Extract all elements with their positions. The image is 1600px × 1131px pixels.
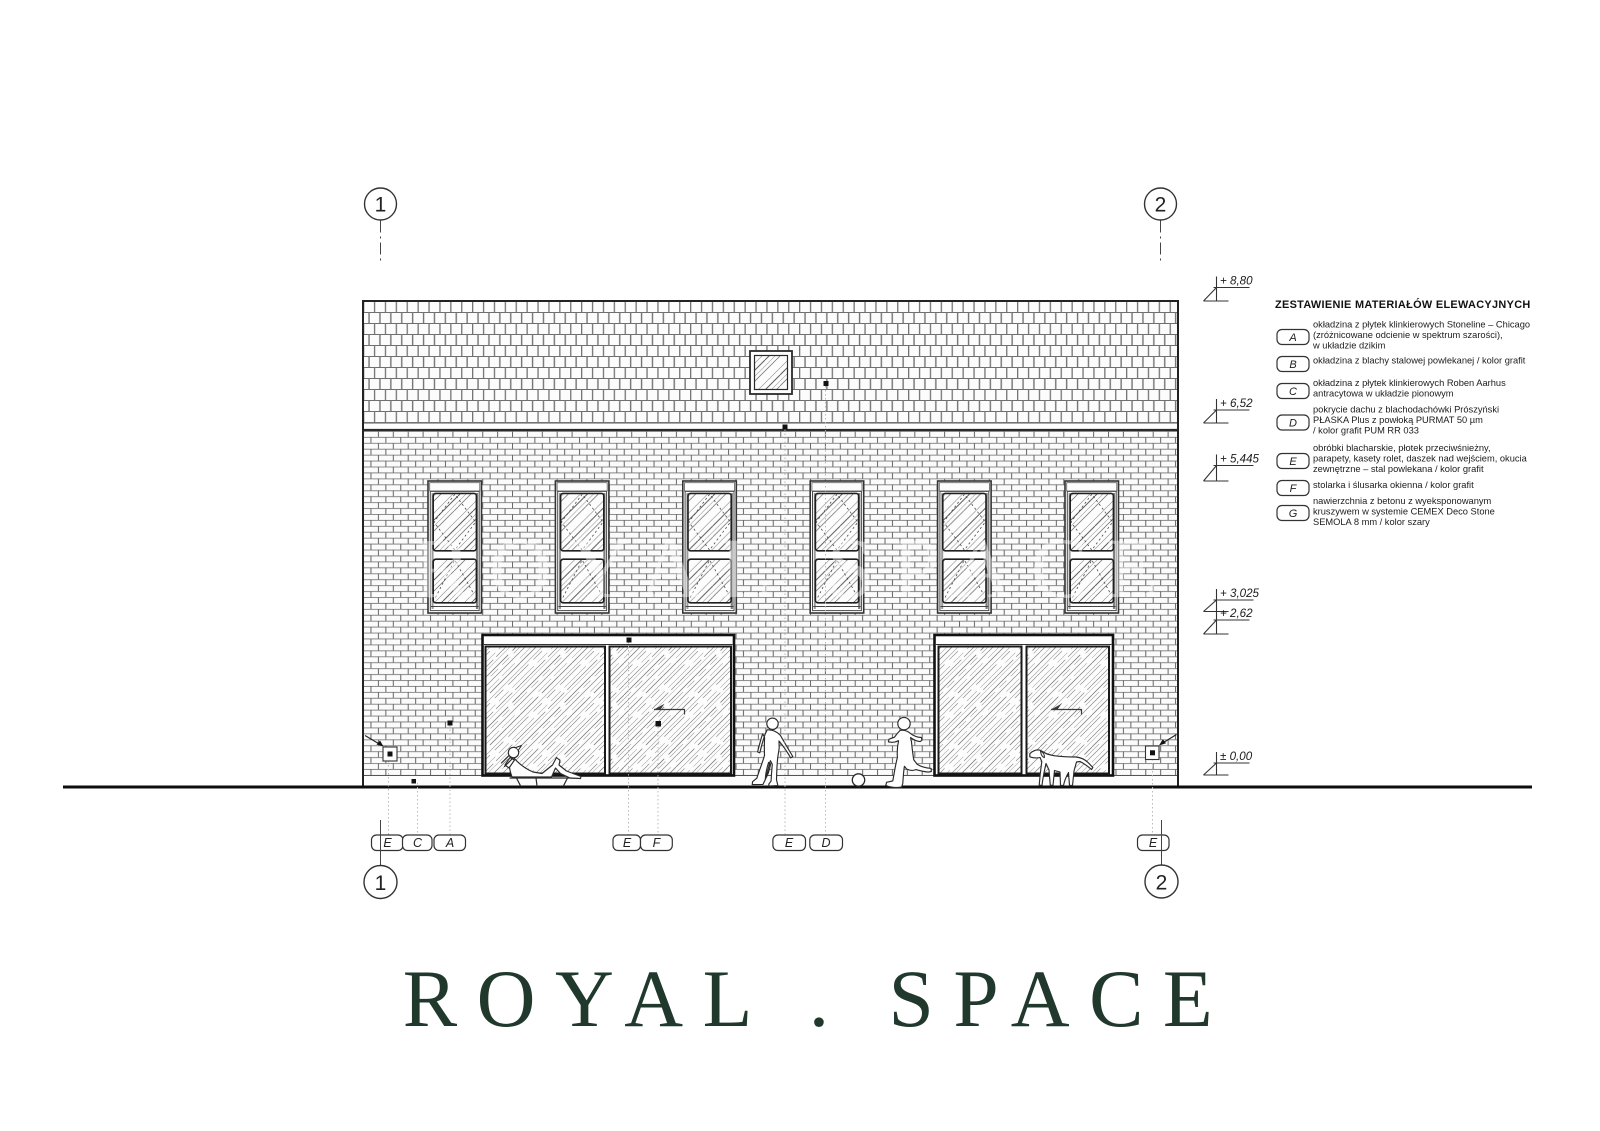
svg-text:+ 6,52: + 6,52 [1220,397,1253,410]
svg-text:pokrycie dachu z blachodachówk: pokrycie dachu z blachodachówki Prószyńs… [1313,405,1499,415]
svg-text:E: E [785,836,794,850]
svg-text:A: A [1288,332,1296,344]
svg-text:2: 2 [1155,194,1167,217]
svg-text:/ kolor grafit PUM RR 033: / kolor grafit PUM RR 033 [1313,426,1419,436]
svg-text:(zróżnicowane odcienie w spekt: (zróżnicowane odcienie w spektrum szaroś… [1313,330,1503,340]
svg-text:obróbki blacharskie, płotek pr: obróbki blacharskie, płotek przeciwśnież… [1313,443,1491,453]
svg-text:parapety, kasety rolet, daszek: parapety, kasety rolet, daszek nad wejśc… [1313,454,1528,464]
svg-text:okładzina z płytek klinkierowy: okładzina z płytek klinkierowych Stoneli… [1313,320,1530,330]
svg-text:C: C [413,836,423,850]
svg-text:G: G [1289,508,1298,520]
svg-text:D: D [821,836,830,850]
svg-text:nawierzchnia z betonu z wyeksp: nawierzchnia z betonu z wyeksponowanym [1313,496,1492,506]
svg-text:+ 5,445: + 5,445 [1220,453,1260,466]
svg-text:A: A [445,836,454,850]
svg-text:okładzina z płytek klinkierowy: okładzina z płytek klinkierowych Roben A… [1313,378,1506,388]
svg-text:E: E [1149,836,1158,850]
svg-text:w układzie dzikim: w układzie dzikim [1312,341,1386,351]
svg-text:E: E [623,836,632,850]
svg-text:+ 3,025: + 3,025 [1220,587,1260,600]
svg-text:zewnętrzne – stal powlekana /: zewnętrzne – stal powlekana / kolor graf… [1313,464,1484,474]
svg-text:ROYAL SPACE: ROYAL SPACE [414,520,1177,616]
svg-text:1: 1 [375,194,387,217]
svg-text:± 0,00: ± 0,00 [1220,750,1253,763]
svg-text:ZESTAWIENIE MATERIAŁÓW ELEWACY: ZESTAWIENIE MATERIAŁÓW ELEWACYJNYCH [1275,298,1531,311]
svg-text:stolarka i ślusarka okienna /: stolarka i ślusarka okienna / kolor graf… [1313,480,1474,490]
svg-text:B: B [1289,359,1296,371]
svg-text:2: 2 [1156,872,1168,895]
svg-text:1: 1 [375,872,387,895]
svg-text:ROYAL . SPACE: ROYAL . SPACE [403,953,1232,1044]
svg-text:SEMOLA 8 mm / kolor szary: SEMOLA 8 mm / kolor szary [1313,517,1430,527]
svg-text:D: D [1289,418,1297,430]
svg-text:E: E [383,836,392,850]
svg-text:okładzina z blachy stalowej po: okładzina z blachy stalowej powlekanej /… [1313,356,1526,366]
svg-text:E: E [1289,456,1297,468]
svg-text:+ 8,80: + 8,80 [1220,275,1253,288]
svg-text:kruszywem w systemie CEMEX Dec: kruszywem w systemie CEMEX Deco Stone [1313,507,1495,517]
svg-text:+ 2,62: + 2,62 [1220,607,1253,620]
svg-text:C: C [1289,386,1297,398]
svg-text:antracytowa w układzie pionowy: antracytowa w układzie pionowym [1313,389,1454,399]
svg-text:PŁASKA Plus z powłoką PURMAT 5: PŁASKA Plus z powłoką PURMAT 50 µm [1313,415,1483,425]
